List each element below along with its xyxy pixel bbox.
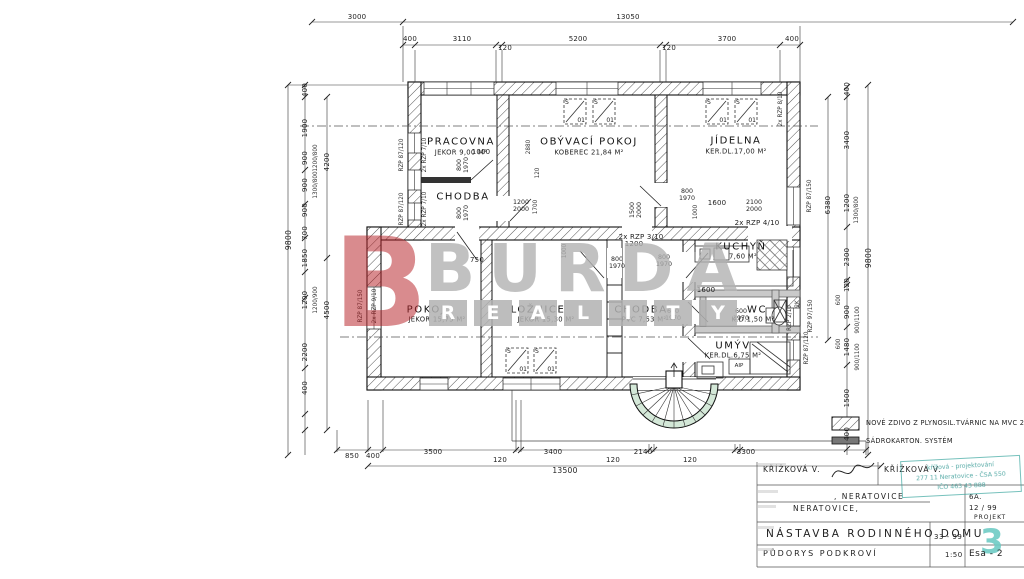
faint-label: [758, 526, 774, 529]
drawing-scale: 1:50: [945, 551, 963, 559]
sheet-number: Esa - 2: [969, 549, 1003, 559]
legend-item-masonry: NOVÉ ZDIVO Z PLYNOSIL.TVÁRNIC NA MVC 25-: [866, 419, 1024, 427]
project-code: 33 - 99: [934, 533, 962, 541]
partition-wall: [421, 177, 471, 183]
faint-label: [758, 463, 786, 466]
faint-label: [758, 490, 778, 493]
place-1: , NERATOVICE: [834, 492, 904, 501]
legend-symbols: [832, 417, 859, 444]
place-2: NERATOVICE,: [793, 504, 859, 513]
signature: [832, 463, 874, 477]
faint-label: [758, 505, 776, 508]
company-stamp: křížová - projektování 277 11 Neratovice…: [900, 455, 1022, 498]
drawing-title: PŮDORYS PODKROVÍ: [763, 549, 878, 558]
author-name: KŘÍŽKOVÁ V.: [763, 465, 820, 474]
faint-label: [758, 548, 774, 551]
floorplan-page: 3000130504003110120520012037004009800400…: [0, 0, 1024, 579]
project-label: PROJEKT: [974, 514, 1006, 521]
exterior-walls: [367, 82, 800, 390]
legend-item-drywall: SÁDROKARTON. SYSTÉM: [866, 437, 953, 445]
door-leaves: [457, 160, 710, 359]
date: 12 / 99: [969, 504, 997, 512]
kitchen-fixtures: [695, 240, 793, 286]
wardrobe-strip: [607, 240, 622, 377]
spiral-stair: [630, 363, 718, 428]
